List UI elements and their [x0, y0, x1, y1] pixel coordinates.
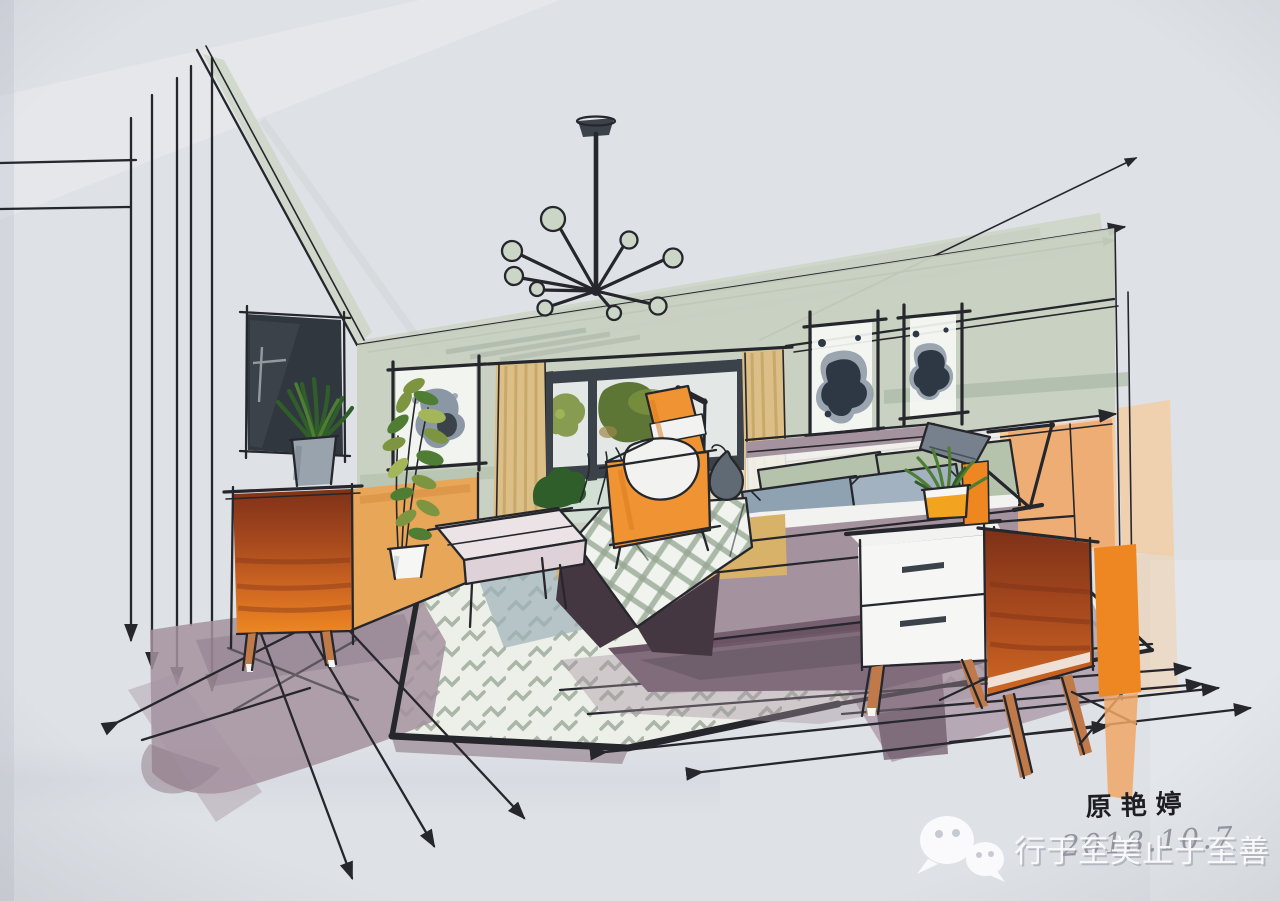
sketch-photo: Hand-drawn marker rendering of a bedroom…	[0, 0, 1280, 901]
artist-signature: 原艳婷	[1085, 788, 1191, 823]
watermark-text: 行于至美止于至善	[1014, 834, 1270, 870]
bedroom-marker-sketch: Hand-drawn marker rendering of a bedroom…	[0, 0, 1280, 901]
